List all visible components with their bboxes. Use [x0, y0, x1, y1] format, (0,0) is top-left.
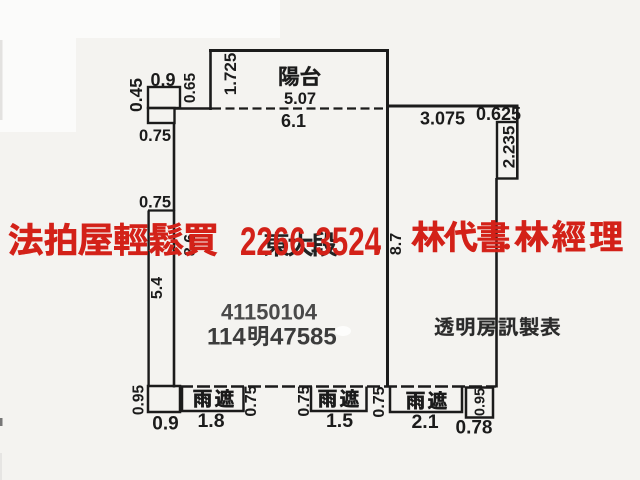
svg-text:0.75: 0.75 — [139, 194, 171, 212]
svg-text:0.75: 0.75 — [139, 127, 171, 145]
svg-text:1.725: 1.725 — [221, 53, 240, 96]
svg-text:0.9: 0.9 — [150, 70, 175, 90]
svg-text:,: , — [375, 230, 382, 257]
svg-text:5.4: 5.4 — [149, 277, 166, 299]
svg-text:0.65: 0.65 — [182, 73, 199, 104]
svg-text:114: 114 — [207, 324, 246, 351]
svg-text:0.9: 0.9 — [152, 414, 178, 435]
svg-text:0.75: 0.75 — [371, 386, 388, 417]
svg-text:5.07: 5.07 — [284, 90, 316, 108]
svg-text:1.5: 1.5 — [326, 410, 353, 432]
svg-text:0.45: 0.45 — [126, 78, 146, 112]
svg-text:6.1: 6.1 — [281, 111, 306, 131]
svg-text:0.75: 0.75 — [296, 385, 313, 416]
svg-text:2.1: 2.1 — [411, 411, 438, 433]
svg-text:8.7: 8.7 — [388, 233, 405, 255]
svg-text:0.75: 0.75 — [243, 385, 260, 416]
svg-text:0.95: 0.95 — [473, 388, 489, 416]
svg-text:1.8: 1.8 — [197, 410, 224, 432]
svg-text:2266-3524: 2266-3524 — [240, 220, 382, 264]
svg-text:2.235: 2.235 — [500, 126, 519, 169]
svg-text:41150104: 41150104 — [221, 300, 318, 325]
svg-text:47585: 47585 — [270, 324, 337, 351]
svg-text:0.625: 0.625 — [476, 104, 521, 124]
svg-text:0.78: 0.78 — [456, 418, 493, 439]
svg-text:0.95: 0.95 — [131, 385, 148, 416]
svg-text:3.075: 3.075 — [420, 109, 465, 129]
